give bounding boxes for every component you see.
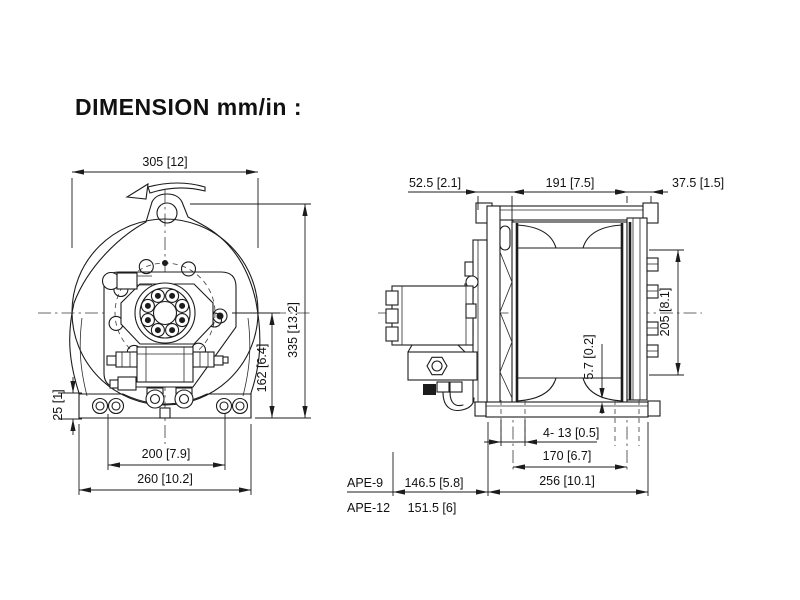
technical-drawing: DIMENSION mm/in : [0,0,800,600]
dim-foot-height: 25 [1] [51,377,82,435]
motor-flange [135,283,195,343]
dim-foot-height-label: 25 [1] [51,389,65,420]
top-mount-ear [152,194,182,202]
dim-overall-height-label: 335 [13.2] [286,302,300,358]
front-view: 305 [12] 335 [13.2] 162 [6.4] 25 [1] 200… [38,155,312,495]
dim-bolt-spacing: 200 [7.9] [108,414,225,470]
dim-hole-spacing-label: 170 [6.7] [543,449,592,463]
anchor-hole [157,203,177,223]
hose-lines [443,392,474,410]
connector-block [423,384,436,395]
valve-block [107,347,228,418]
dim-mounting-holes: 4- 13 [0.5] [484,420,599,446]
dim-right-offset-label: 37.5 [1.5] [672,176,724,190]
rope-drum [512,222,627,404]
dim-base-width-label: 260 [10.2] [137,472,193,486]
dim-motor-offset-label: 52.5 [2.1] [409,176,461,190]
model-dimension-table: APE-9 146.5 [5.8] APE-12 151.5 [6] [347,452,488,515]
dim-overall-width-label: 305 [12] [142,155,187,169]
dim-right-offset: 37.5 [1.5] [613,176,724,203]
dim-base-length-label: 256 [10.1] [539,474,595,488]
dim-hole-spacing: 170 [6.7] [513,449,627,470]
model-row-1-name: APE-9 [347,476,383,490]
dim-bolt-spacing-label: 200 [7.9] [142,447,191,461]
plate-clips [647,258,658,357]
dim-base-gap-label: 5.7 [0.2] [582,334,596,379]
left-frame-post [487,206,512,415]
rotation-arrow-icon [127,183,205,199]
right-side-plate [627,218,658,400]
hex-plug [427,357,447,374]
dim-drum-length: 191 [7.5] [512,176,627,203]
hydraulic-motor [386,240,487,410]
model-row-2-name: APE-12 [347,501,390,515]
page-title: DIMENSION mm/in : [75,94,302,120]
dim-motor-offset: 52.5 [2.1] [408,176,526,230]
model-row-1-value: 146.5 [5.8] [404,476,463,490]
dim-mounting-holes-label: 4- 13 [0.5] [543,426,599,440]
dim-drum-length-label: 191 [7.5] [546,176,595,190]
side-bolt-center [217,313,224,320]
model-row-2-value: 151.5 [6] [408,501,457,515]
side-view: 52.5 [2.1] 191 [7.5] 37.5 [1.5] 205 [8.1… [347,176,724,515]
dim-motor-center-height-label: 162 [6.4] [255,344,269,393]
drawing-page: DIMENSION mm/in : [0,0,800,600]
dim-drum-diameter-label: 205 [8.1] [658,288,672,337]
